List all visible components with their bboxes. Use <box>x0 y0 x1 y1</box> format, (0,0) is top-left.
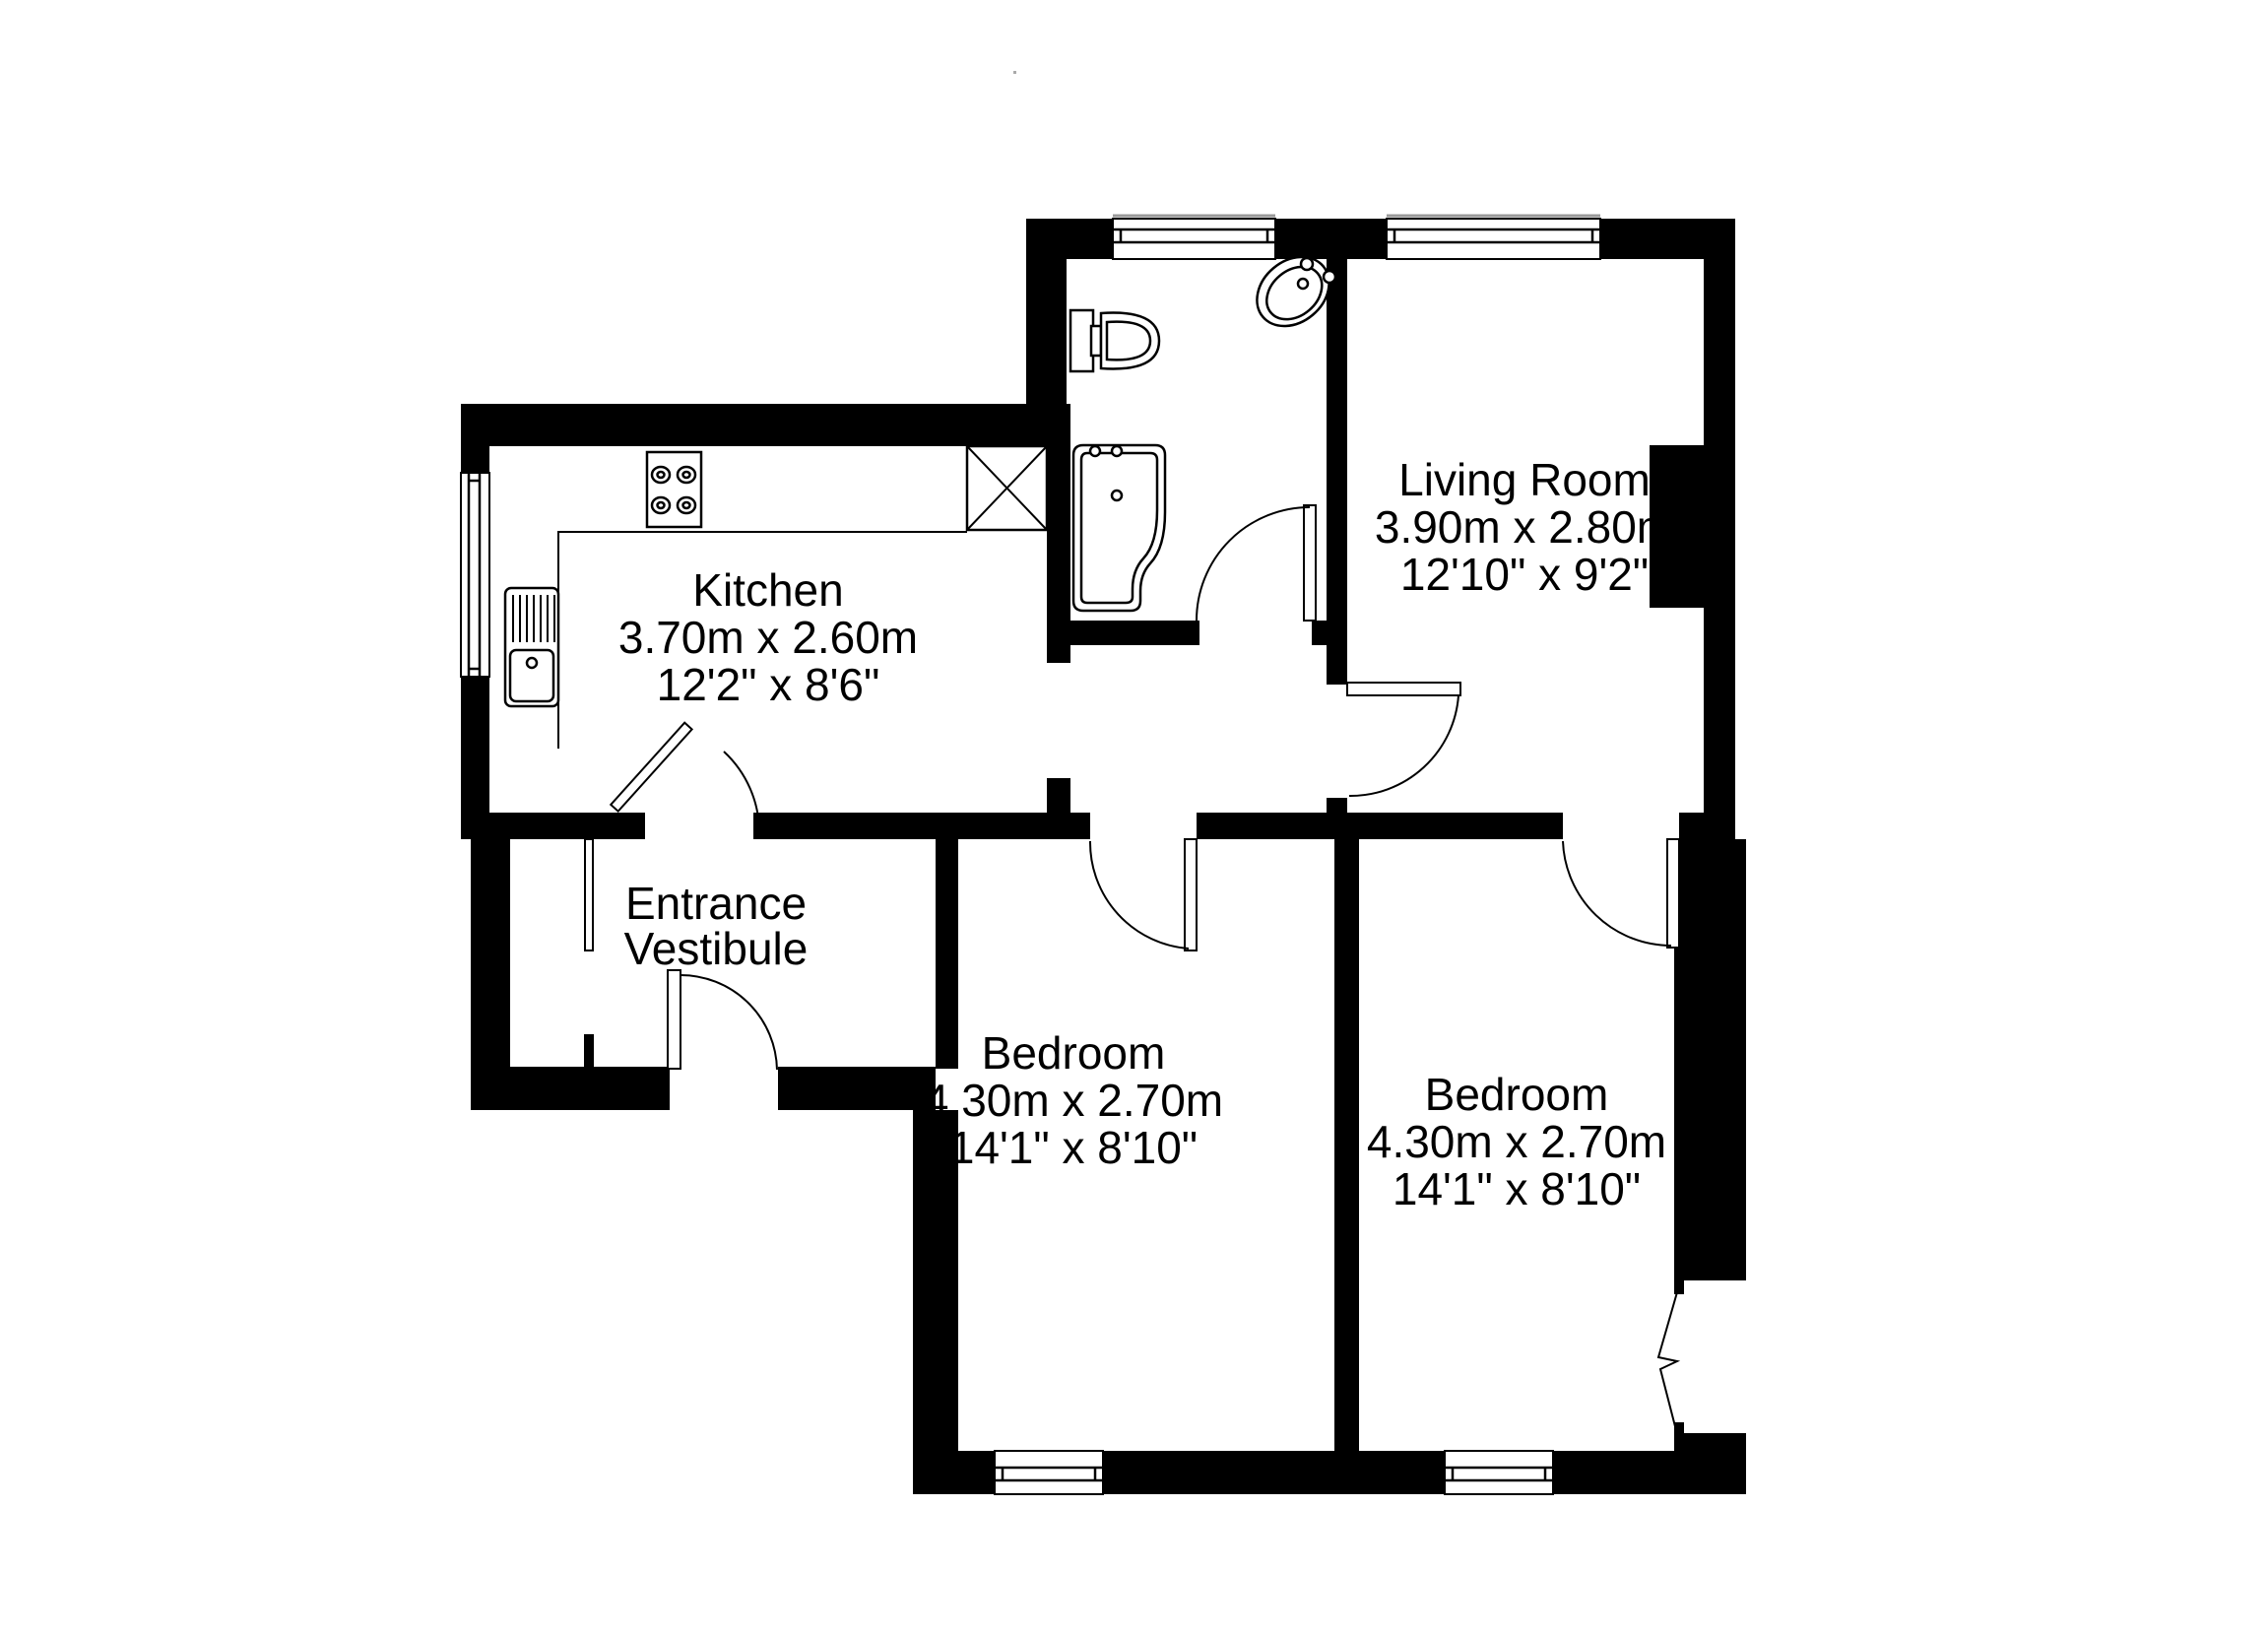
floor-plan-drawing: Kitchen 3.70m x 2.60m 12'2" x 8'6" Livin… <box>0 0 2268 1638</box>
room-size-imperial: 14'1" x 8'10" <box>1393 1163 1641 1214</box>
room-size-metric: 3.90m x 2.80m <box>1375 501 1674 553</box>
wall <box>936 839 958 1069</box>
wall <box>471 1067 670 1110</box>
kitchen-sink <box>505 588 558 706</box>
artifact-dot <box>1013 71 1016 74</box>
window <box>1113 216 1275 259</box>
window <box>1445 1451 1553 1494</box>
room-name: Living Room <box>1398 454 1651 505</box>
room-size-imperial: 12'10" x 9'2" <box>1400 549 1649 600</box>
toilet <box>1070 310 1159 371</box>
wall <box>1334 839 1359 1451</box>
wall <box>471 813 645 839</box>
room-name-line2: Vestibule <box>624 923 809 974</box>
room-size-imperial: 14'1" x 8'10" <box>949 1122 1198 1173</box>
room-name-line1: Entrance <box>625 878 807 929</box>
closet-door-panel <box>585 839 593 950</box>
room-size-metric: 3.70m x 2.60m <box>618 612 918 663</box>
wall <box>1047 778 1070 816</box>
room-size-imperial: 12'2" x 8'6" <box>657 659 880 710</box>
wall <box>1047 621 1199 645</box>
wall <box>1674 1280 1684 1294</box>
wall <box>1197 813 1563 839</box>
room-name: Bedroom <box>1425 1069 1609 1120</box>
stove <box>647 452 701 527</box>
window <box>1387 216 1600 259</box>
kitchen-unit <box>967 446 1047 530</box>
room-size-metric: 4.30m x 2.70m <box>1367 1116 1666 1167</box>
wall <box>1327 259 1347 685</box>
window <box>461 473 489 677</box>
wall <box>1679 813 1704 839</box>
wall <box>753 813 1090 839</box>
wall <box>1674 839 1746 1280</box>
wall <box>461 404 1067 446</box>
room-label-entrance-vestibule: Entrance Vestibule <box>624 878 809 974</box>
wall <box>471 818 510 1067</box>
wall <box>584 1034 594 1069</box>
floor-plan-page: Kitchen 3.70m x 2.60m 12'2" x 8'6" Livin… <box>0 0 2268 1638</box>
wall <box>778 1067 936 1110</box>
window <box>995 1451 1103 1494</box>
room-size-metric: 4.30m x 2.70m <box>924 1075 1223 1126</box>
wall <box>1327 798 1347 816</box>
room-name: Kitchen <box>692 564 843 616</box>
room-label-living-room: Living Room 3.90m x 2.80m 12'10" x 9'2" <box>1375 454 1674 600</box>
room-name: Bedroom <box>982 1027 1166 1079</box>
